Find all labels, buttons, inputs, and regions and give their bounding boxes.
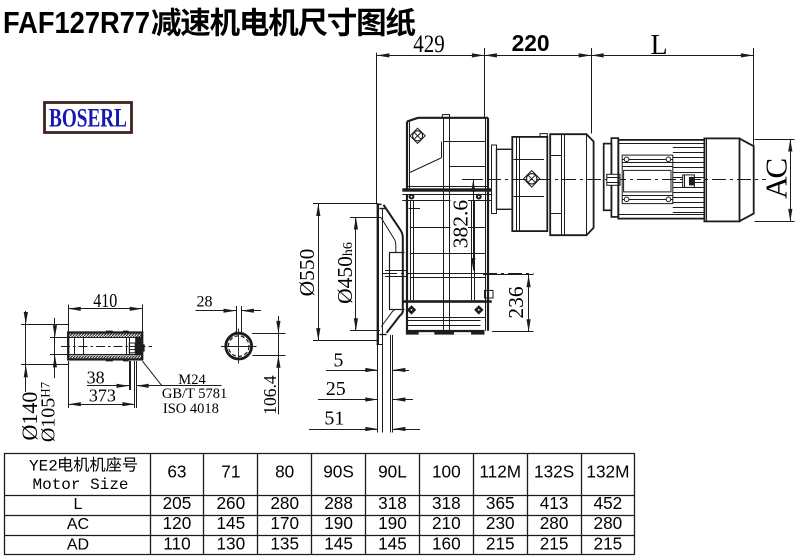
- svg-text:452: 452: [594, 493, 623, 513]
- svg-text:132M: 132M: [586, 462, 629, 482]
- svg-text:236: 236: [504, 286, 528, 319]
- svg-text:429: 429: [413, 31, 445, 58]
- svg-text:GB/T 5781: GB/T 5781: [162, 386, 227, 402]
- svg-text:230: 230: [486, 513, 515, 533]
- svg-text:160: 160: [432, 533, 461, 553]
- svg-text:Ø550: Ø550: [295, 249, 319, 297]
- svg-text:410: 410: [93, 291, 117, 312]
- svg-text:90L: 90L: [378, 462, 407, 482]
- svg-text:413: 413: [540, 493, 569, 513]
- svg-text:280: 280: [594, 513, 623, 533]
- svg-text:145: 145: [217, 513, 246, 533]
- svg-text:365: 365: [486, 493, 515, 513]
- svg-text:170: 170: [270, 513, 299, 533]
- svg-text:220: 220: [512, 30, 550, 56]
- svg-text:AD: AD: [67, 536, 89, 553]
- svg-text:145: 145: [324, 533, 353, 553]
- svg-text:135: 135: [270, 533, 299, 553]
- svg-text:5: 5: [333, 350, 343, 372]
- svg-text:373: 373: [89, 385, 116, 405]
- svg-text:FAF127R77: FAF127R77: [3, 5, 150, 40]
- svg-text:190: 190: [324, 513, 353, 533]
- svg-text:112M: 112M: [479, 462, 521, 482]
- svg-text:280: 280: [540, 513, 569, 533]
- svg-text:90S: 90S: [323, 462, 354, 482]
- svg-text:215: 215: [540, 533, 569, 553]
- svg-text:BOSERL: BOSERL: [49, 104, 127, 133]
- svg-text:Ø450h6: Ø450h6: [333, 242, 357, 304]
- svg-text:145: 145: [378, 533, 407, 553]
- svg-text:100: 100: [432, 462, 461, 482]
- svg-text:382.6: 382.6: [449, 200, 473, 249]
- svg-text:106.4: 106.4: [260, 375, 280, 415]
- svg-text:L: L: [650, 30, 667, 61]
- svg-text:80: 80: [275, 462, 294, 482]
- svg-text:38: 38: [87, 367, 105, 387]
- svg-text:110: 110: [163, 533, 190, 553]
- svg-text:318: 318: [378, 493, 407, 513]
- svg-text:205: 205: [163, 493, 192, 513]
- svg-text:190: 190: [378, 513, 407, 533]
- svg-text:132S: 132S: [534, 462, 574, 482]
- svg-text:AC: AC: [67, 516, 89, 533]
- svg-text:318: 318: [432, 493, 461, 513]
- svg-text:288: 288: [324, 493, 353, 513]
- svg-text:AC: AC: [759, 159, 794, 198]
- svg-text:Ø105H7: Ø105H7: [38, 381, 60, 442]
- svg-text:120: 120: [163, 513, 192, 533]
- svg-text:Motor Size: Motor Size: [33, 476, 129, 494]
- svg-text:215: 215: [486, 533, 515, 553]
- svg-text:210: 210: [432, 513, 461, 533]
- svg-text:28: 28: [197, 293, 213, 310]
- svg-text:L: L: [74, 496, 83, 513]
- svg-text:71: 71: [221, 462, 240, 482]
- svg-text:260: 260: [217, 493, 246, 513]
- svg-text:215: 215: [594, 533, 623, 553]
- svg-text:ISO 4018: ISO 4018: [163, 401, 219, 417]
- svg-text:YE2: YE2: [29, 458, 58, 476]
- svg-text:63: 63: [167, 462, 186, 482]
- svg-text:25: 25: [326, 378, 346, 400]
- svg-text:280: 280: [270, 493, 299, 513]
- svg-text:130: 130: [217, 533, 246, 553]
- svg-text:51: 51: [324, 408, 344, 430]
